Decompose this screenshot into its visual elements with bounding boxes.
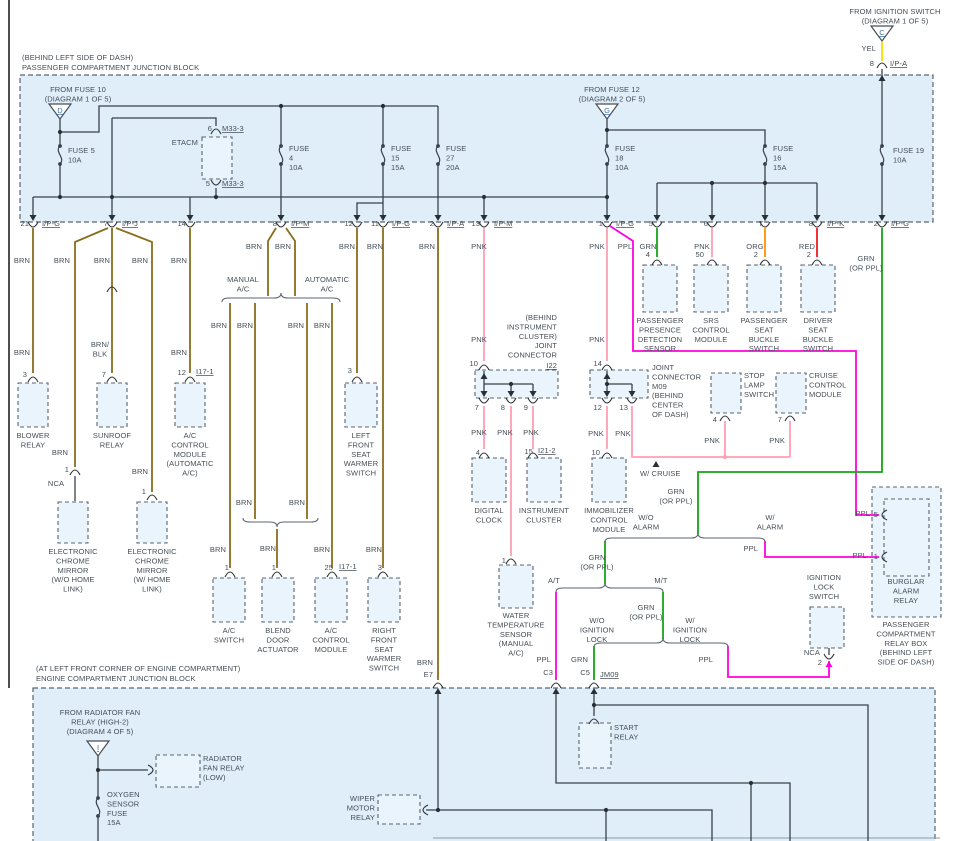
diagram-label: 2 [807, 250, 811, 259]
diagram-label: I/P-G [616, 219, 634, 228]
diagram-label: I/P-G [891, 219, 909, 228]
diagram-label: 2 [874, 219, 878, 228]
diagram-label: PNK [471, 335, 487, 344]
diagram-label: I/P-G [392, 219, 410, 228]
diagram-label: A/CSWITCH [214, 626, 244, 644]
option-brace [556, 583, 663, 592]
junction-dot [436, 808, 440, 812]
diagram-label: 3 [23, 370, 27, 379]
diagram-label: NCA [48, 479, 64, 488]
diagram-label: 3 [348, 366, 352, 375]
diagram-label: A/CCONTROLMODULE [312, 626, 349, 654]
instrument-cluster-box [527, 458, 561, 502]
terminal-arc [70, 470, 80, 475]
diagram-label: INSTRUMENTCLUSTER [519, 506, 569, 524]
diagram-label: 2 [818, 658, 822, 667]
terminal-arc [506, 559, 516, 564]
diagram-label: M33-3 [222, 124, 244, 133]
diagram-label: GRN(OR PPL) [849, 254, 883, 272]
diagram-label: BRN [367, 242, 383, 251]
diagram-label: PNK [589, 335, 605, 344]
stop-lamp-switch-box [711, 373, 741, 413]
diagram-label: WATERTEMPERATURESENSOR(MANUALA/C) [487, 611, 544, 658]
diagram-label: MANUALA/C [227, 275, 259, 293]
junction-dot [763, 181, 767, 185]
diagram-label: 1 [142, 487, 146, 496]
diagram-label: 1 [225, 563, 229, 572]
diagram-label: BRN [417, 658, 433, 667]
diagram-label: 8 [273, 219, 277, 228]
diagram-label: 12 [344, 219, 353, 228]
diagram-label: 4 [646, 250, 650, 259]
diagram-label: 10 [469, 359, 478, 368]
wiring-diagram-canvas: DGCI(BEHIND LEFT SIDE OF DASH)PASSENGER … [0, 0, 972, 841]
diagram-label: SUNROOFRELAY [93, 431, 132, 449]
terminal-arc [272, 572, 282, 577]
diagram-label: I17-1 [339, 562, 357, 571]
diagram-label: 14 [177, 219, 186, 228]
terminal-arc [479, 365, 489, 370]
diagram-label: I17-1 [196, 367, 214, 376]
blend-door-actuator-box [262, 578, 294, 622]
diagram-label: PASSENGERSEATBUCKLESWITCH [740, 316, 788, 353]
diagram-label: BRN [14, 256, 30, 265]
diagram-label: PPL [618, 242, 632, 251]
diagram-label: BRN [210, 545, 226, 554]
junction-dot [482, 195, 486, 199]
terminal-arc [479, 222, 489, 227]
digital-clock-box [472, 458, 506, 502]
left-front-seat-warmer-switch-box [345, 383, 377, 427]
diagram-label: PPL [537, 655, 551, 664]
diagram-label: W/OIGNITIONLOCK [580, 616, 614, 644]
terminal-arc [720, 416, 730, 421]
terminal-arc [877, 63, 887, 68]
diagram-label: PNK [471, 428, 487, 437]
radiator-fan-relay-low-box [156, 755, 200, 787]
diagram-label: 6 [704, 219, 708, 228]
diagram-label: IMMOBILIZERCONTROLMODULE [584, 506, 634, 534]
diagram-label: BRN [275, 242, 291, 251]
wire-arrow [826, 661, 833, 667]
fuse-19-terminal [880, 144, 884, 148]
diagram-label: PASSENGERPRESENCEDETECTIONSENSOR [636, 316, 684, 353]
terminal-arc [506, 398, 516, 403]
terminal-arc [707, 260, 717, 265]
diagram-label: ENGINE COMPARTMENT JUNCTION BLOCK [36, 674, 196, 683]
diagram-label: GRN [571, 655, 588, 664]
from-fuse-12-marker-letter: G [604, 106, 610, 115]
diagram-label: CRUISECONTROLMODULE [809, 371, 846, 399]
diagram-label: BRN [236, 498, 252, 507]
oxygen-sensor-fuse-terminal [96, 796, 100, 800]
blower-relay-box [18, 383, 48, 427]
driver-seat-buckle-switch-box [801, 265, 835, 312]
diagram-label: BRN [246, 242, 262, 251]
electronic-chrome-mirror-wo-homelink-box [58, 502, 88, 543]
diagram-label: BLOWERRELAY [16, 431, 50, 449]
diagram-label: PPL [744, 544, 758, 553]
diagram-label: W/IGNITIONLOCK [673, 616, 707, 644]
diagram-label: (BEHIND LEFT SIDE OF DASH) [22, 53, 134, 62]
diagram-label: PNK [704, 436, 720, 445]
diagram-label: 1 [272, 563, 276, 572]
junction-dot [749, 781, 753, 785]
diagram-label: IGNITIONLOCKSWITCH [807, 573, 841, 601]
terminal-arc [652, 222, 662, 227]
junction-dot [723, 455, 727, 459]
diagram-label: W/ALARM [757, 513, 783, 531]
sunroof-relay-box [97, 383, 127, 427]
diagram-label: 1 [65, 465, 69, 474]
junction-dot [605, 128, 609, 132]
wire-brn [286, 228, 295, 296]
diagram-label: BRN/BLK [91, 340, 110, 358]
fuse-27-terminal [436, 144, 440, 148]
terminal-arc [652, 260, 662, 265]
diagram-label: 12 [177, 368, 186, 377]
diagram-label: 4 [476, 448, 480, 457]
from-radiator-fan-relay-marker-letter: I [97, 743, 99, 752]
terminal-arc [812, 260, 822, 265]
terminal-arc [433, 222, 443, 227]
diagram-label: 3 [378, 563, 382, 572]
ignition-lock-switch-box [810, 607, 844, 648]
junction-dot [214, 195, 218, 199]
diagram-label: 7 [104, 219, 108, 228]
diagram-label: 1 [502, 556, 506, 565]
diagram-label: PNK [497, 428, 513, 437]
diagram-label: 9 [524, 403, 528, 412]
diagram-label: C3 [543, 668, 553, 677]
diagram-label: I/P-A [890, 59, 907, 68]
diagram-label: PNK [615, 429, 631, 438]
diagram-label: 10 [591, 448, 600, 457]
terminal-arc [147, 495, 157, 500]
diagram-label: BRN [94, 256, 110, 265]
diagram-label: BRN [171, 348, 187, 357]
terminal-arc [627, 398, 637, 403]
terminal-arc [589, 683, 599, 688]
diagram-label: ELECTRONICCHROMEMIRROR(W/O HOMELINK) [48, 547, 98, 594]
diagram-label: 1 [874, 552, 878, 561]
diagram-label: 7 [475, 403, 479, 412]
start-relay-box [579, 723, 611, 768]
terminal-arc [602, 453, 612, 458]
diagram-label: A/CCONTROLMODULE(AUTOMATICA/C) [167, 431, 214, 478]
junction-dot [96, 768, 100, 772]
diagram-label: WIPERMOTORRELAY [347, 794, 376, 822]
junction-dot [110, 195, 114, 199]
diagram-label: STARTRELAY [614, 723, 639, 741]
electronic-chrome-mirror-w-homelink-box [137, 502, 167, 543]
option-brace [605, 533, 765, 542]
diagram-label: SRSCONTROLMODULE [692, 316, 729, 344]
diagram-label: M/T [654, 576, 668, 585]
diagram-label: PASSENGER COMPARTMENT JUNCTION BLOCK [22, 63, 199, 72]
immobilizer-control-module-box [592, 458, 626, 502]
junction-dot [279, 104, 283, 108]
diagram-label: PNK [471, 242, 487, 251]
diagram-label: BRN [314, 321, 330, 330]
ac-control-module-box [315, 578, 347, 622]
terminal-arc [352, 377, 362, 382]
junction-dot [592, 703, 596, 707]
junction-dot [58, 130, 62, 134]
diagram-label: DRIVERSEATBUCKLESWITCH [803, 316, 834, 353]
diagram-label: 15 [524, 447, 533, 456]
diagram-label: 7 [778, 415, 782, 424]
diagram-label: I22 [546, 361, 557, 370]
diagram-label: DIGITALCLOCK [474, 506, 503, 524]
terminal-arc [378, 572, 388, 577]
terminal-arc [28, 222, 38, 227]
fuse-18-terminal [605, 162, 609, 166]
junction-dot [605, 195, 609, 199]
diagram-label: BRN [288, 321, 304, 330]
from-fuse-10-marker-letter: D [57, 106, 63, 115]
diagram-label: M33-3 [222, 179, 244, 188]
diagram-label: E7 [424, 670, 433, 679]
terminal-arc [185, 222, 195, 227]
diagram-label: 25 [324, 563, 333, 572]
junction-dot [381, 104, 385, 108]
diagram-label: YEL [862, 44, 876, 53]
diagram-label: I/P-J [122, 219, 138, 228]
terminal-arc [479, 398, 489, 403]
diagram-label: I/P-A [447, 219, 464, 228]
terminal-arc [528, 398, 538, 403]
diagram-label: I/P-K [827, 219, 844, 228]
diagram-label: BRN [132, 467, 148, 476]
diagram-label: 14 [593, 359, 602, 368]
diagram-label: 13 [619, 403, 628, 412]
fuse-5-terminal [58, 162, 62, 166]
diagram-label: STOPLAMPSWITCH [744, 371, 774, 399]
terminal-arc [107, 377, 117, 382]
diagram-label: BRN [237, 321, 253, 330]
diagram-label: BRN [260, 544, 276, 553]
diagram-label: 7 [102, 370, 106, 379]
passenger-compartment-junction-block [20, 75, 933, 222]
diagram-label: JOINTCONNECTORM09(BEHINDCENTEROF DASH) [652, 363, 702, 419]
diagram-label: PPL [853, 551, 867, 560]
junction-dot [604, 808, 608, 812]
diagram-label: BRN [132, 256, 148, 265]
terminal-arc [225, 572, 235, 577]
junction-dot [710, 181, 714, 185]
cruise-control-module-box [776, 373, 806, 413]
diagram-label: 7 [759, 219, 763, 228]
diagram-label: (BEHINDINSTRUMENTCLUSTER)JOINTCONNECTOR [507, 313, 558, 360]
ac-switch-box [213, 578, 245, 622]
diagram-label: 1 [599, 219, 603, 228]
diagram-label: BRN [339, 242, 355, 251]
diagram-label: 2 [430, 219, 434, 228]
diagram-label: PPL [856, 509, 870, 518]
etacm-box [202, 137, 232, 179]
terminal-arc [602, 365, 612, 370]
diagram-label: A/T [548, 576, 560, 585]
diagram-label: BRN [54, 256, 70, 265]
diagram-label: I/P-M [291, 219, 309, 228]
fuse-19-terminal [880, 162, 884, 166]
diagram-label: 8 [501, 403, 505, 412]
diagram-label: GRN(OR PPL) [659, 487, 693, 505]
terminal-arc [327, 572, 337, 577]
diagram-label: 13 [471, 219, 480, 228]
diagram-label: 8 [870, 59, 874, 68]
diagram-label: 5 [649, 219, 653, 228]
junction-dot [509, 382, 513, 386]
diagram-label: I/P-M [494, 219, 512, 228]
diagram-label: PPL [699, 655, 713, 664]
terminal-arc [185, 377, 195, 382]
diagram-label: PNK [589, 242, 605, 251]
diagram-label: 5 [874, 510, 878, 519]
wire-brn [116, 228, 152, 492]
diagram-label: PNK [588, 429, 604, 438]
diagram-label: FROM FUSE 12(DIAGRAM 2 OF 5) [579, 85, 646, 103]
diagram-label: I/P-G [42, 219, 60, 228]
fuse-15-terminal [381, 144, 385, 148]
diagram-label: 8 [809, 219, 813, 228]
ac-control-module-automatic-box [175, 383, 205, 427]
diagram-label: 2 [754, 250, 758, 259]
fuse-18-terminal [605, 144, 609, 148]
diagram-label: ETACM [172, 138, 198, 147]
right-front-seat-warmer-switch-box [368, 578, 400, 622]
terminal-arc [378, 222, 388, 227]
terminal-arc [785, 416, 795, 421]
diagram-label: BRN [14, 348, 30, 357]
diagram-label: BRN [366, 545, 382, 554]
fuse-4-terminal [279, 162, 283, 166]
passenger-seat-buckle-switch-box [747, 265, 781, 312]
terminal-arc [707, 222, 717, 227]
terminal-arc [352, 222, 362, 227]
water-temperature-sensor-box [499, 565, 533, 608]
terminal-arc [877, 222, 887, 227]
burglar-alarm-relay-box [884, 499, 929, 576]
diagram-label: NCA [804, 648, 820, 657]
diagram-label: BLENDDOORACTUATOR [257, 626, 299, 654]
junction-dot [605, 382, 609, 386]
terminal-arc [760, 260, 770, 265]
diagram-label: BRN [52, 448, 68, 457]
diagram-label: I21-2 [538, 446, 556, 455]
option-brace [243, 518, 318, 527]
passenger-presence-detection-sensor-box [643, 265, 677, 312]
diagram-label: (AT LEFT FRONT CORNER OF ENGINE COMPARTM… [36, 664, 241, 673]
diagram-label: RIGHTFRONTSEATWARMERSWITCH [367, 626, 402, 673]
diagram-label: FROM IGNITION SWITCH(DIAGRAM 1 OF 5) [849, 7, 940, 25]
diagram-label: JM09 [600, 670, 619, 679]
diagram-label: ELECTRONICCHROMEMIRROR(W/ HOMELINK) [127, 547, 177, 594]
diagram-label: FROM FUSE 10(DIAGRAM 1 OF 5) [45, 85, 112, 103]
fuse-15-terminal [381, 162, 385, 166]
srs-control-module-box [694, 265, 728, 312]
option-brace [222, 293, 340, 302]
fuse-4-terminal [279, 144, 283, 148]
terminal-arc [107, 222, 117, 227]
diagram-label: FROM RADIATOR FANRELAY (HIGH-2)(DIAGRAM … [60, 708, 141, 736]
diagram-label: GRN(OR PPL) [629, 603, 663, 621]
diagram-label: 50 [695, 250, 704, 259]
from-ignition-switch-marker-letter: C [879, 28, 885, 37]
diagram-label: 5 [206, 179, 210, 188]
diagram-label: W/OALARM [633, 513, 659, 531]
terminal-arc [28, 377, 38, 382]
diagram-label: BRN [419, 242, 435, 251]
diagram-label: W/ CRUISE [640, 469, 680, 478]
diagram-label: BRN [314, 545, 330, 554]
wire-brn [268, 228, 276, 296]
wiring-diagram-page: DGCI(BEHIND LEFT SIDE OF DASH)PASSENGER … [0, 0, 972, 841]
diagram-label: GRN(OR PPL) [580, 553, 614, 571]
terminal-arc [276, 222, 286, 227]
diagram-label: PNK [523, 428, 539, 437]
diagram-label: 6 [208, 124, 212, 133]
diagram-label: 4 [713, 415, 717, 424]
terminal-arc [602, 398, 612, 403]
terminal-arc [812, 222, 822, 227]
diagram-label: BRN [211, 321, 227, 330]
diagram-label: PASSENGERCOMPARTMENTRELAY BOX(BEHIND LEF… [876, 620, 935, 667]
fuse-16-terminal [763, 144, 767, 148]
diagram-label: BRN [171, 256, 187, 265]
diagram-label: 21 [20, 219, 29, 228]
wire-arrow [653, 461, 660, 467]
diagram-label: C5 [580, 668, 590, 677]
diagram-label: AUTOMATICA/C [305, 275, 350, 293]
fuse-27-terminal [436, 162, 440, 166]
diagram-label: 12 [593, 403, 602, 412]
diagram-label: BRN [289, 498, 305, 507]
fuse-16-terminal [763, 162, 767, 166]
option-brace [594, 638, 728, 647]
junction-dot [58, 195, 62, 199]
terminal-arc [433, 683, 443, 688]
diagram-label: 11 [371, 219, 379, 228]
fuse-5-terminal [58, 144, 62, 148]
wiper-motor-relay-box [378, 795, 420, 824]
oxygen-sensor-fuse-terminal [96, 814, 100, 818]
terminal-arc [479, 453, 489, 458]
diagram-label: LEFTFRONTSEATWARMERSWITCH [344, 431, 379, 478]
terminal-arc [551, 683, 561, 688]
diagram-label: PNK [769, 436, 785, 445]
